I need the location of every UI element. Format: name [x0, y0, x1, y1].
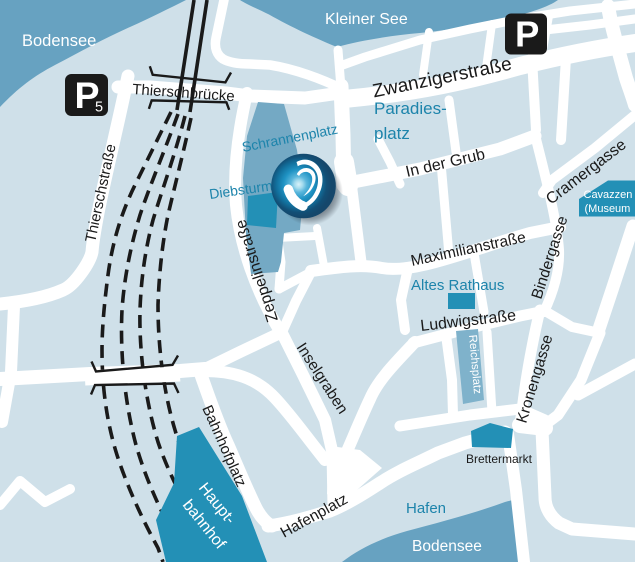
- svg-text:5: 5: [95, 100, 103, 116]
- svg-text:platz: platz: [374, 124, 410, 143]
- svg-text:Bodensee: Bodensee: [412, 538, 482, 555]
- svg-text:Brettermarkt: Brettermarkt: [466, 452, 533, 466]
- svg-text:Bodensee: Bodensee: [22, 32, 96, 50]
- svg-text:Kleiner See: Kleiner See: [325, 11, 408, 28]
- svg-text:Altes Rathaus: Altes Rathaus: [411, 277, 504, 294]
- svg-text:P: P: [515, 14, 539, 55]
- svg-text:Paradies-: Paradies-: [374, 99, 447, 118]
- svg-text:(Museum: (Museum: [585, 203, 631, 215]
- svg-text:Cavazzen: Cavazzen: [584, 189, 633, 201]
- svg-text:Hafen: Hafen: [406, 500, 446, 517]
